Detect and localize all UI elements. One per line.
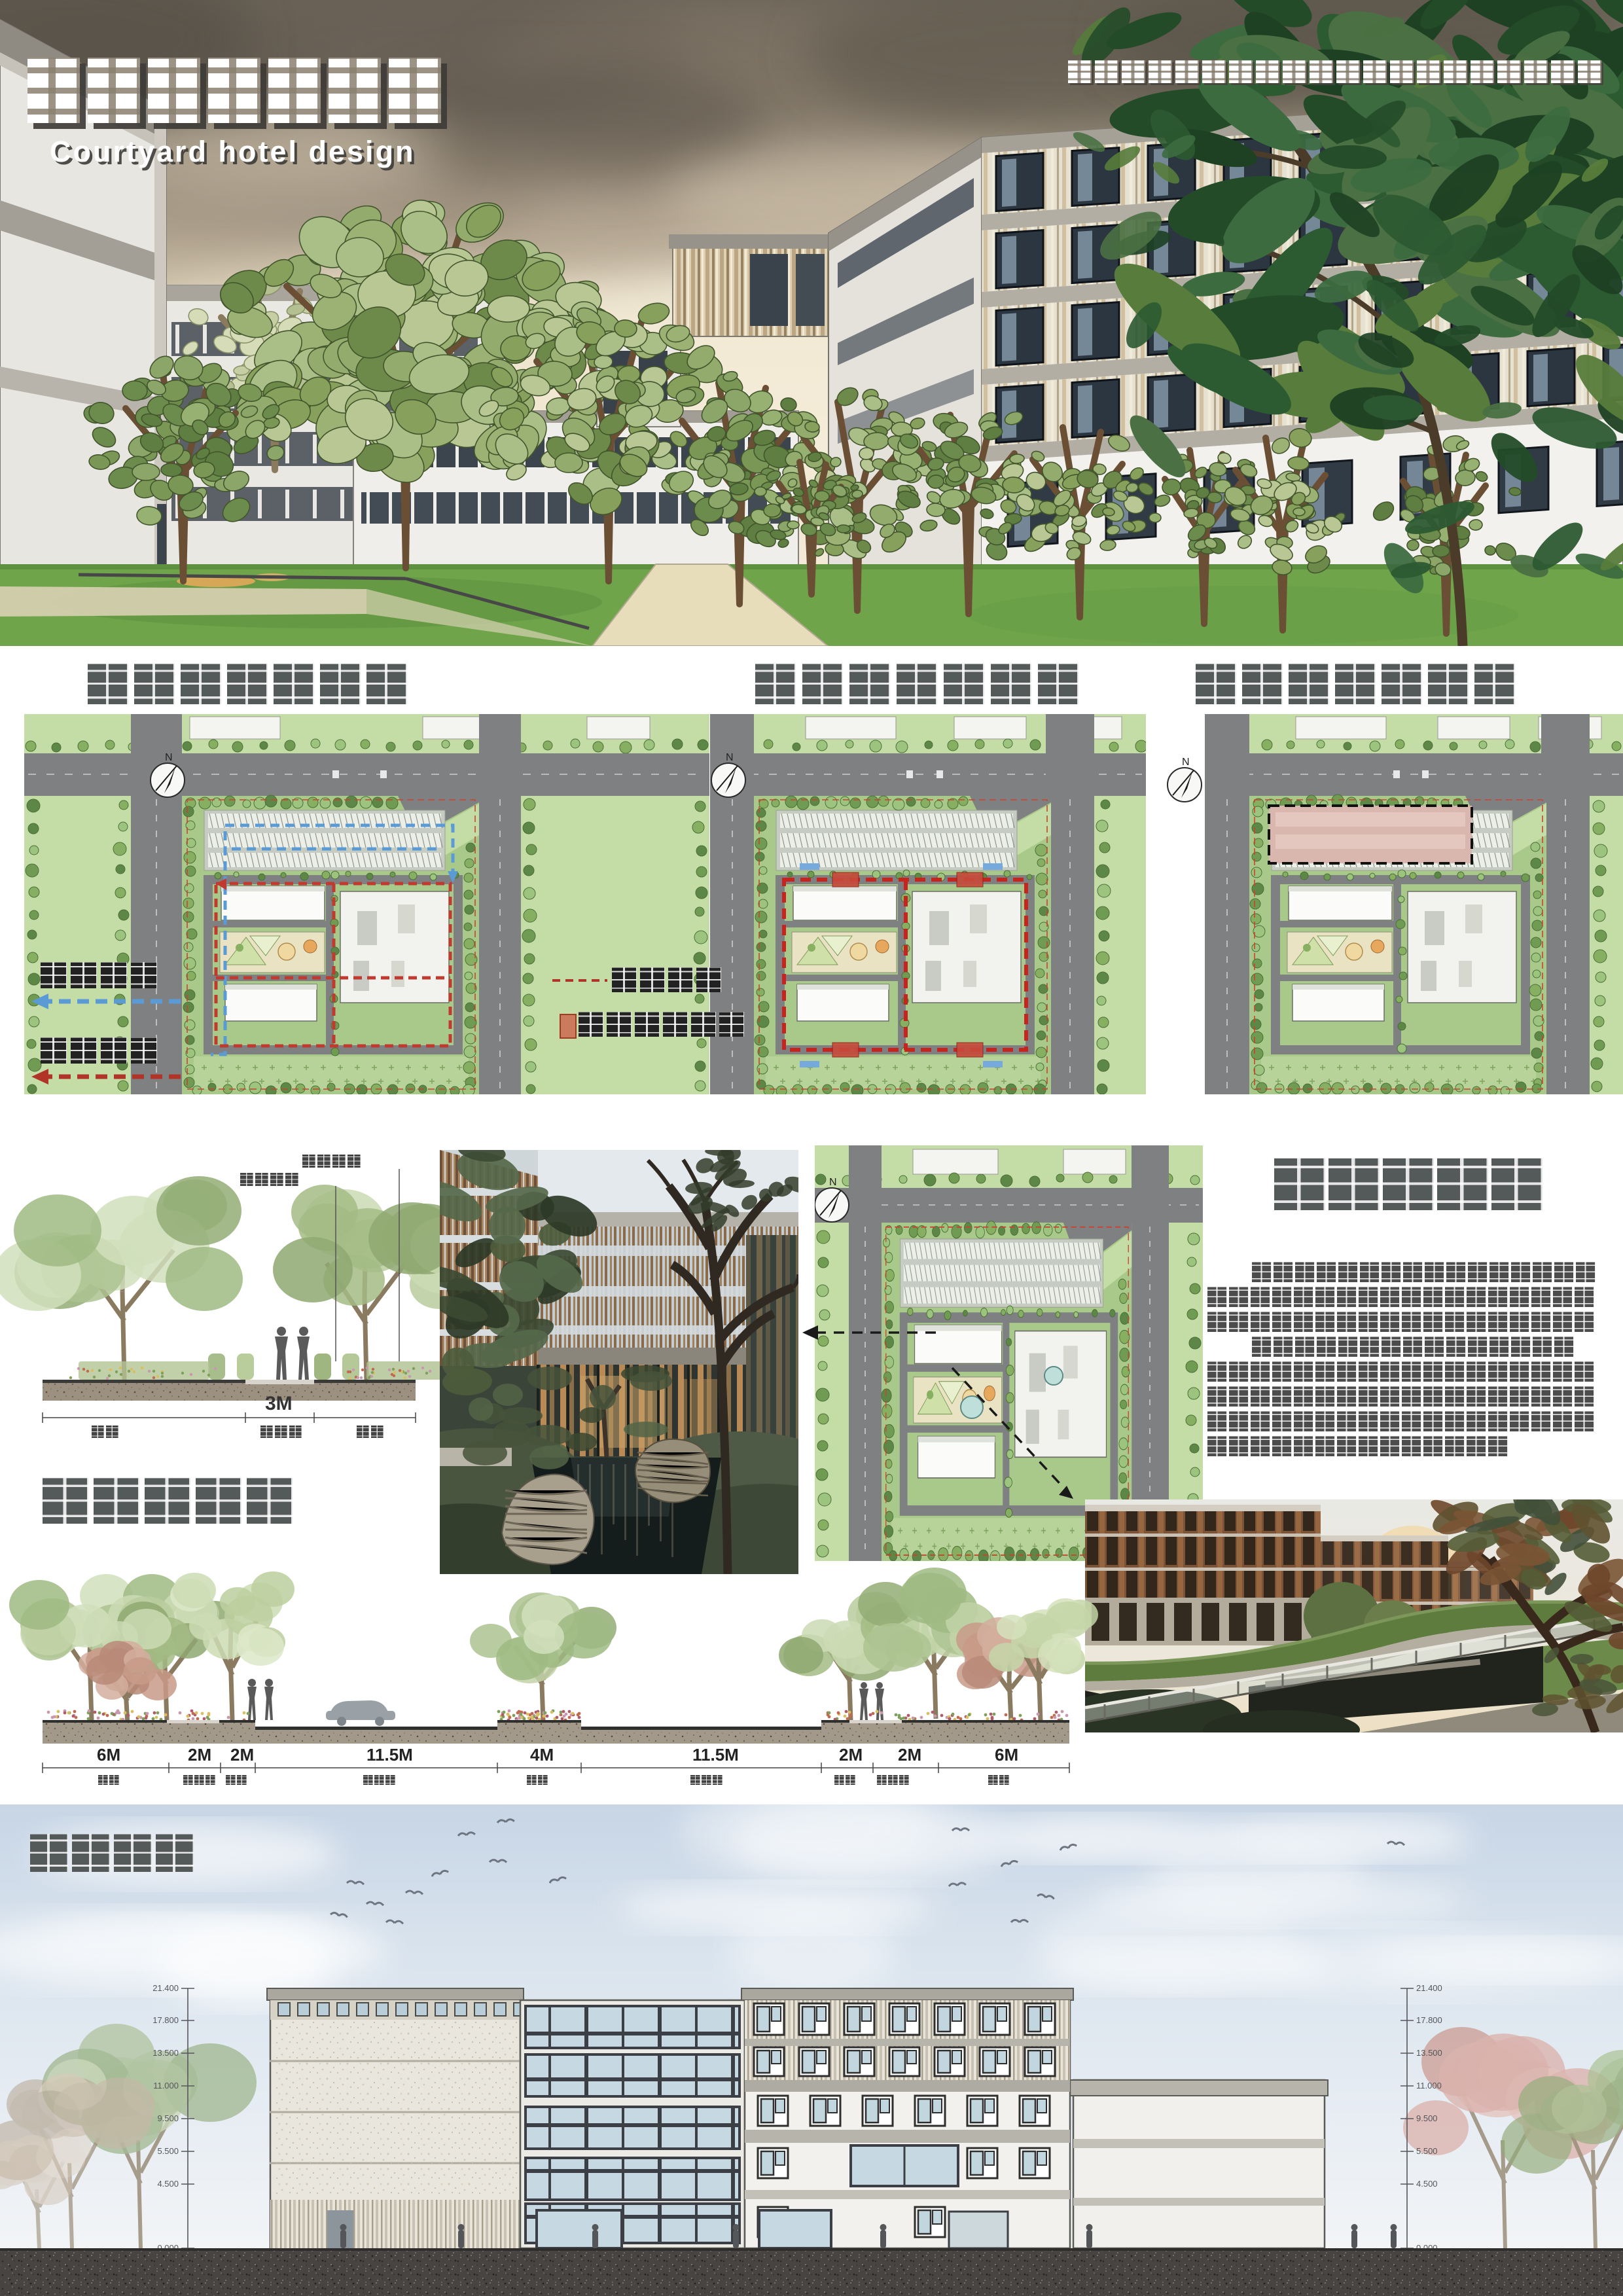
svg-text:13.500: 13.500	[1416, 2048, 1442, 2058]
svg-text:3M: 3M	[265, 1393, 293, 1414]
svg-text:2M: 2M	[230, 1745, 254, 1765]
svg-text:4M: 4M	[530, 1745, 554, 1765]
svg-text:17.800: 17.800	[1416, 2015, 1442, 2025]
svg-text:9.500: 9.500	[157, 2113, 179, 2123]
svg-text:2M: 2M	[839, 1745, 863, 1765]
svg-text:11.000: 11.000	[1416, 2081, 1442, 2090]
svg-text:4.500: 4.500	[1416, 2179, 1438, 2189]
svg-text:11.5M: 11.5M	[692, 1745, 739, 1765]
svg-text:9.500: 9.500	[1416, 2113, 1438, 2123]
svg-text:N: N	[1182, 757, 1190, 768]
svg-text:6M: 6M	[97, 1745, 120, 1765]
svg-text:2M: 2M	[188, 1745, 211, 1765]
svg-text:21.400: 21.400	[152, 1983, 179, 1993]
svg-text:2M: 2M	[898, 1745, 921, 1765]
svg-text:21.400: 21.400	[1416, 1983, 1442, 1993]
svg-text:11.000: 11.000	[153, 2081, 179, 2090]
svg-text:N: N	[829, 1177, 837, 1188]
svg-text:17.800: 17.800	[152, 2015, 179, 2025]
svg-text:N: N	[726, 752, 734, 763]
svg-text:6M: 6M	[995, 1745, 1018, 1765]
svg-text:4.500: 4.500	[157, 2179, 179, 2189]
svg-text:13.500: 13.500	[152, 2048, 179, 2058]
svg-text:11.5M: 11.5M	[366, 1745, 413, 1765]
svg-text:5.500: 5.500	[157, 2146, 179, 2156]
svg-text:N: N	[165, 752, 173, 763]
svg-text:5.500: 5.500	[1416, 2146, 1438, 2156]
